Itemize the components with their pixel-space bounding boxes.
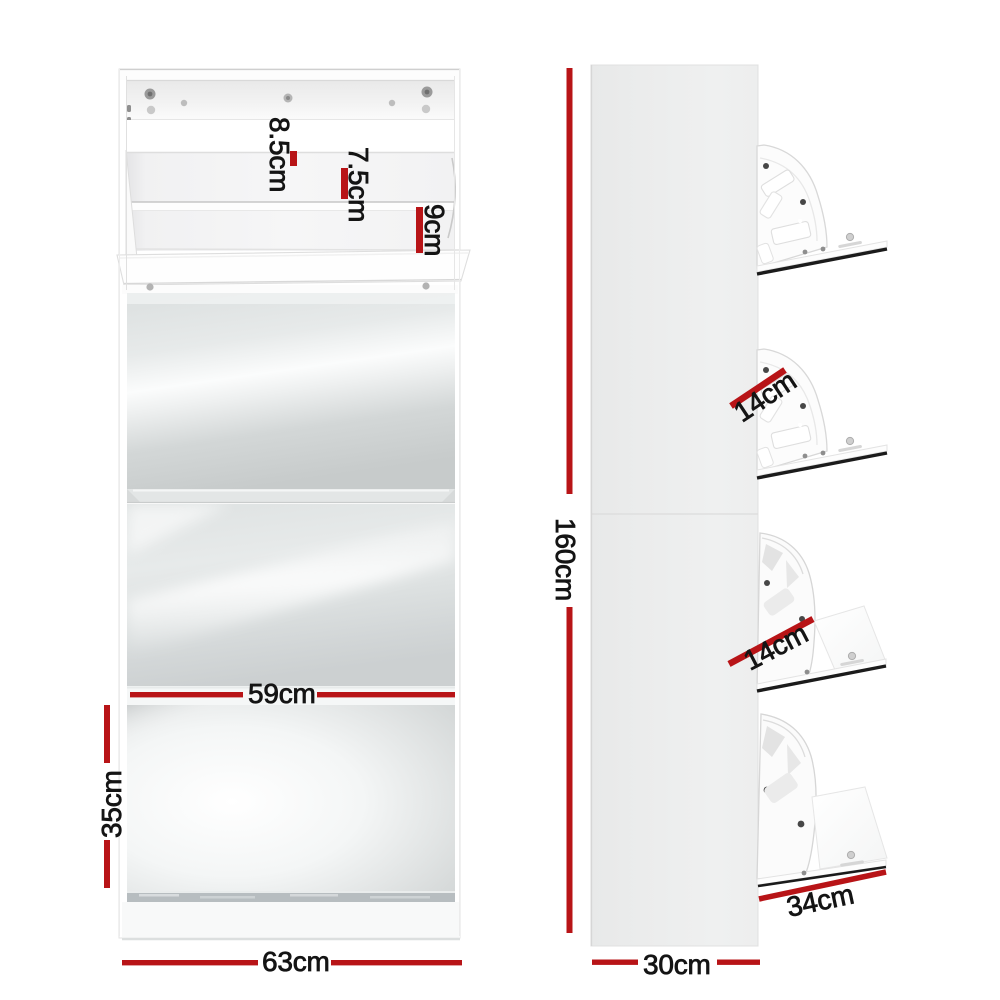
svg-text:59cm: 59cm [248, 678, 316, 709]
svg-text:160cm: 160cm [550, 518, 581, 601]
svg-text:9cm: 9cm [419, 204, 450, 256]
svg-text:35cm: 35cm [96, 770, 127, 838]
svg-text:30cm: 30cm [643, 949, 711, 980]
svg-text:63cm: 63cm [262, 946, 330, 977]
svg-text:8.5cm: 8.5cm [264, 117, 295, 192]
svg-text:7.5cm: 7.5cm [343, 147, 374, 222]
